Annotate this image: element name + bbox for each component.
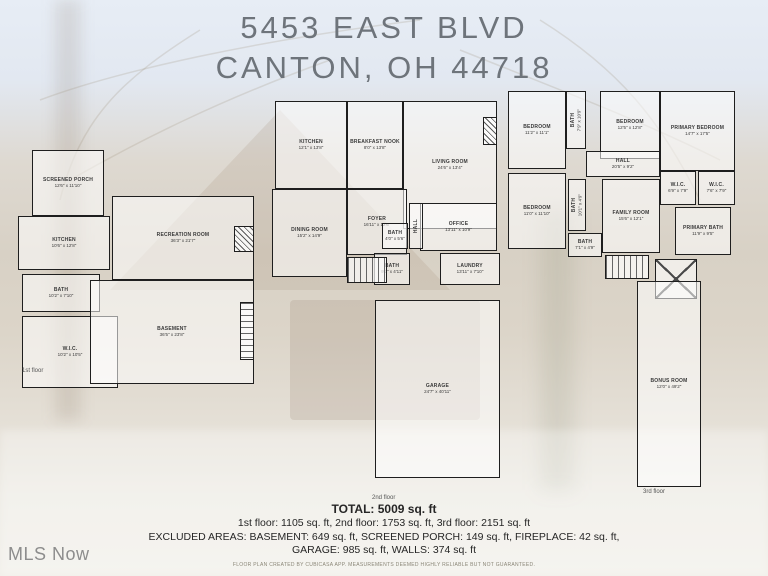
room-hall: HALL xyxy=(409,203,423,249)
room-bedroom: BEDROOM11'2" x 11'1" xyxy=(508,91,566,169)
area-summary: TOTAL: 5009 sq. ft 1st floor: 1105 sq. f… xyxy=(0,502,768,568)
fireplace-hatch xyxy=(483,117,497,145)
floor-plan-1st-floor: SCREENED PORCH12'6" x 11'10"KITCHEN10'6"… xyxy=(8,140,254,390)
room-label: HALL xyxy=(413,219,419,233)
room-label: LIVING ROOM24'6" x 13'4" xyxy=(432,159,468,171)
excluded-areas-line2: GARAGE: 985 sq. ft, WALLS: 374 sq. ft xyxy=(0,544,768,558)
room-primary-bath: PRIMARY BATH11'9" x 9'5" xyxy=(675,207,731,255)
floor-label: 1st floor xyxy=(22,368,43,374)
room-label: GARAGE24'7" x 40'11" xyxy=(424,383,451,395)
room-label: LAUNDRY13'11" x 7'10" xyxy=(457,263,484,275)
room-label: W.I.C.7'6" x 7'9" xyxy=(707,182,727,194)
room-label: BEDROOM12'5" x 12'8" xyxy=(616,119,644,131)
room-wic-2: W.I.C.7'6" x 7'9" xyxy=(698,171,735,205)
room-bath-3: BATH7'1" x 4'9" xyxy=(568,233,602,257)
room-label: KITCHEN10'6" x 12'8" xyxy=(52,237,77,249)
room-bedroom-2: BEDROOM12'5" x 12'8" xyxy=(600,91,660,159)
floor-plan-3rd-floor: BEDROOM11'2" x 11'1"BATH7'9" x 10'9"BEDR… xyxy=(505,85,737,497)
room-hall: HALL20'5" x 9'2" xyxy=(586,151,660,177)
floor-plan-flyer: 5453 EAST BLVD CANTON, OH 44718 SCREENED… xyxy=(0,0,768,576)
mls-watermark: MLS Now xyxy=(8,544,90,565)
room-label: W.I.C.10'2" x 10'5" xyxy=(58,346,83,358)
room-label: BEDROOM11'2" x 11'1" xyxy=(523,124,551,136)
room-label: FAMILY ROOM15'6" x 12'1" xyxy=(613,210,650,222)
stairs xyxy=(605,255,649,279)
address-line: 5453 EAST BLVD xyxy=(0,8,768,48)
room-breakfast-nook: BREAKFAST NOOK8'0" x 13'8" xyxy=(347,101,403,189)
room-label: RECREATION ROOM36'3" x 21'7" xyxy=(157,232,210,244)
room-label: W.I.C.6'9" x 7'9" xyxy=(668,182,688,194)
room-primary-bedroom: PRIMARY BEDROOM14'7" x 17'5" xyxy=(660,91,735,171)
page-title: 5453 EAST BLVD CANTON, OH 44718 xyxy=(0,8,768,87)
room-laundry: LAUNDRY13'11" x 7'10" xyxy=(440,253,500,285)
room-bath: BATH7'9" x 10'9" xyxy=(566,91,586,149)
room-label: BONUS ROOM12'0" x 49'2" xyxy=(651,378,688,390)
room-label: BATH7'1" x 4'9" xyxy=(575,239,595,251)
stairs xyxy=(347,257,387,283)
room-garage: GARAGE24'7" x 40'11" xyxy=(375,300,500,478)
room-label: KITCHEN12'1" x 13'8" xyxy=(299,139,324,151)
room-label: BATH10'1" x 4'9" xyxy=(571,194,583,216)
excluded-areas-line1: EXCLUDED AREAS: BASEMENT: 649 sq. ft, SC… xyxy=(0,531,768,545)
floor-label: 2nd floor xyxy=(372,495,395,501)
city-line: CANTON, OH 44718 xyxy=(0,48,768,88)
room-label: BREAKFAST NOOK8'0" x 13'8" xyxy=(350,139,400,151)
room-basement: BASEMENT36'5" x 23'8" xyxy=(90,280,254,384)
fireplace-hatch xyxy=(234,226,254,252)
room-label: BATH10'2" x 7'10" xyxy=(49,287,74,299)
room-label: BATH7'9" x 10'9" xyxy=(570,109,582,131)
stairs xyxy=(240,302,254,360)
room-bonus-room: BONUS ROOM12'0" x 49'2" xyxy=(637,281,701,487)
room-bath: BATH4'0" x 5'6" xyxy=(382,223,408,249)
disclaimer: FLOOR PLAN CREATED BY CUBICASA APP. MEAS… xyxy=(0,562,768,568)
room-label: BEDROOM11'0" x 11'10" xyxy=(523,205,551,217)
room-label: PRIMARY BEDROOM14'7" x 17'5" xyxy=(671,125,724,137)
room-kitchen: KITCHEN10'6" x 12'8" xyxy=(18,216,110,270)
room-office: OFFICE13'11" x 10'9" xyxy=(420,203,497,251)
floor-label: 3rd floor xyxy=(643,489,665,495)
room-label: BATH4'0" x 5'6" xyxy=(385,230,405,242)
room-label: BASEMENT36'5" x 23'8" xyxy=(157,326,187,338)
room-kitchen: KITCHEN12'1" x 13'8" xyxy=(275,101,347,189)
room-wic: W.I.C.6'9" x 7'9" xyxy=(660,171,696,205)
room-recreation-room: RECREATION ROOM36'3" x 21'7" xyxy=(112,196,254,280)
room-label: HALL20'5" x 9'2" xyxy=(612,158,634,170)
room-label: SCREENED PORCH12'6" x 11'10" xyxy=(43,177,93,189)
total-area: TOTAL: 5009 sq. ft xyxy=(0,502,768,516)
floor-areas: 1st floor: 1105 sq. ft, 2nd floor: 1753 … xyxy=(0,517,768,531)
room-dining-room: DINING ROOM15'2" x 14'9" xyxy=(272,189,347,277)
floor-plan-2nd-floor: KITCHEN12'1" x 13'8"BREAKFAST NOOK8'0" x… xyxy=(270,95,502,493)
room-bath: BATH10'2" x 7'10" xyxy=(22,274,100,312)
room-label: DINING ROOM15'2" x 14'9" xyxy=(291,227,328,239)
room-screened-porch: SCREENED PORCH12'6" x 11'10" xyxy=(32,150,104,216)
room-label: OFFICE13'11" x 10'9" xyxy=(445,221,472,233)
room-family-room: FAMILY ROOM15'6" x 12'1" xyxy=(602,179,660,253)
room-bath-2: BATH10'1" x 4'9" xyxy=(568,179,586,231)
room-label: PRIMARY BATH11'9" x 9'5" xyxy=(683,225,723,237)
room-bedroom-3: BEDROOM11'0" x 11'10" xyxy=(508,173,566,249)
